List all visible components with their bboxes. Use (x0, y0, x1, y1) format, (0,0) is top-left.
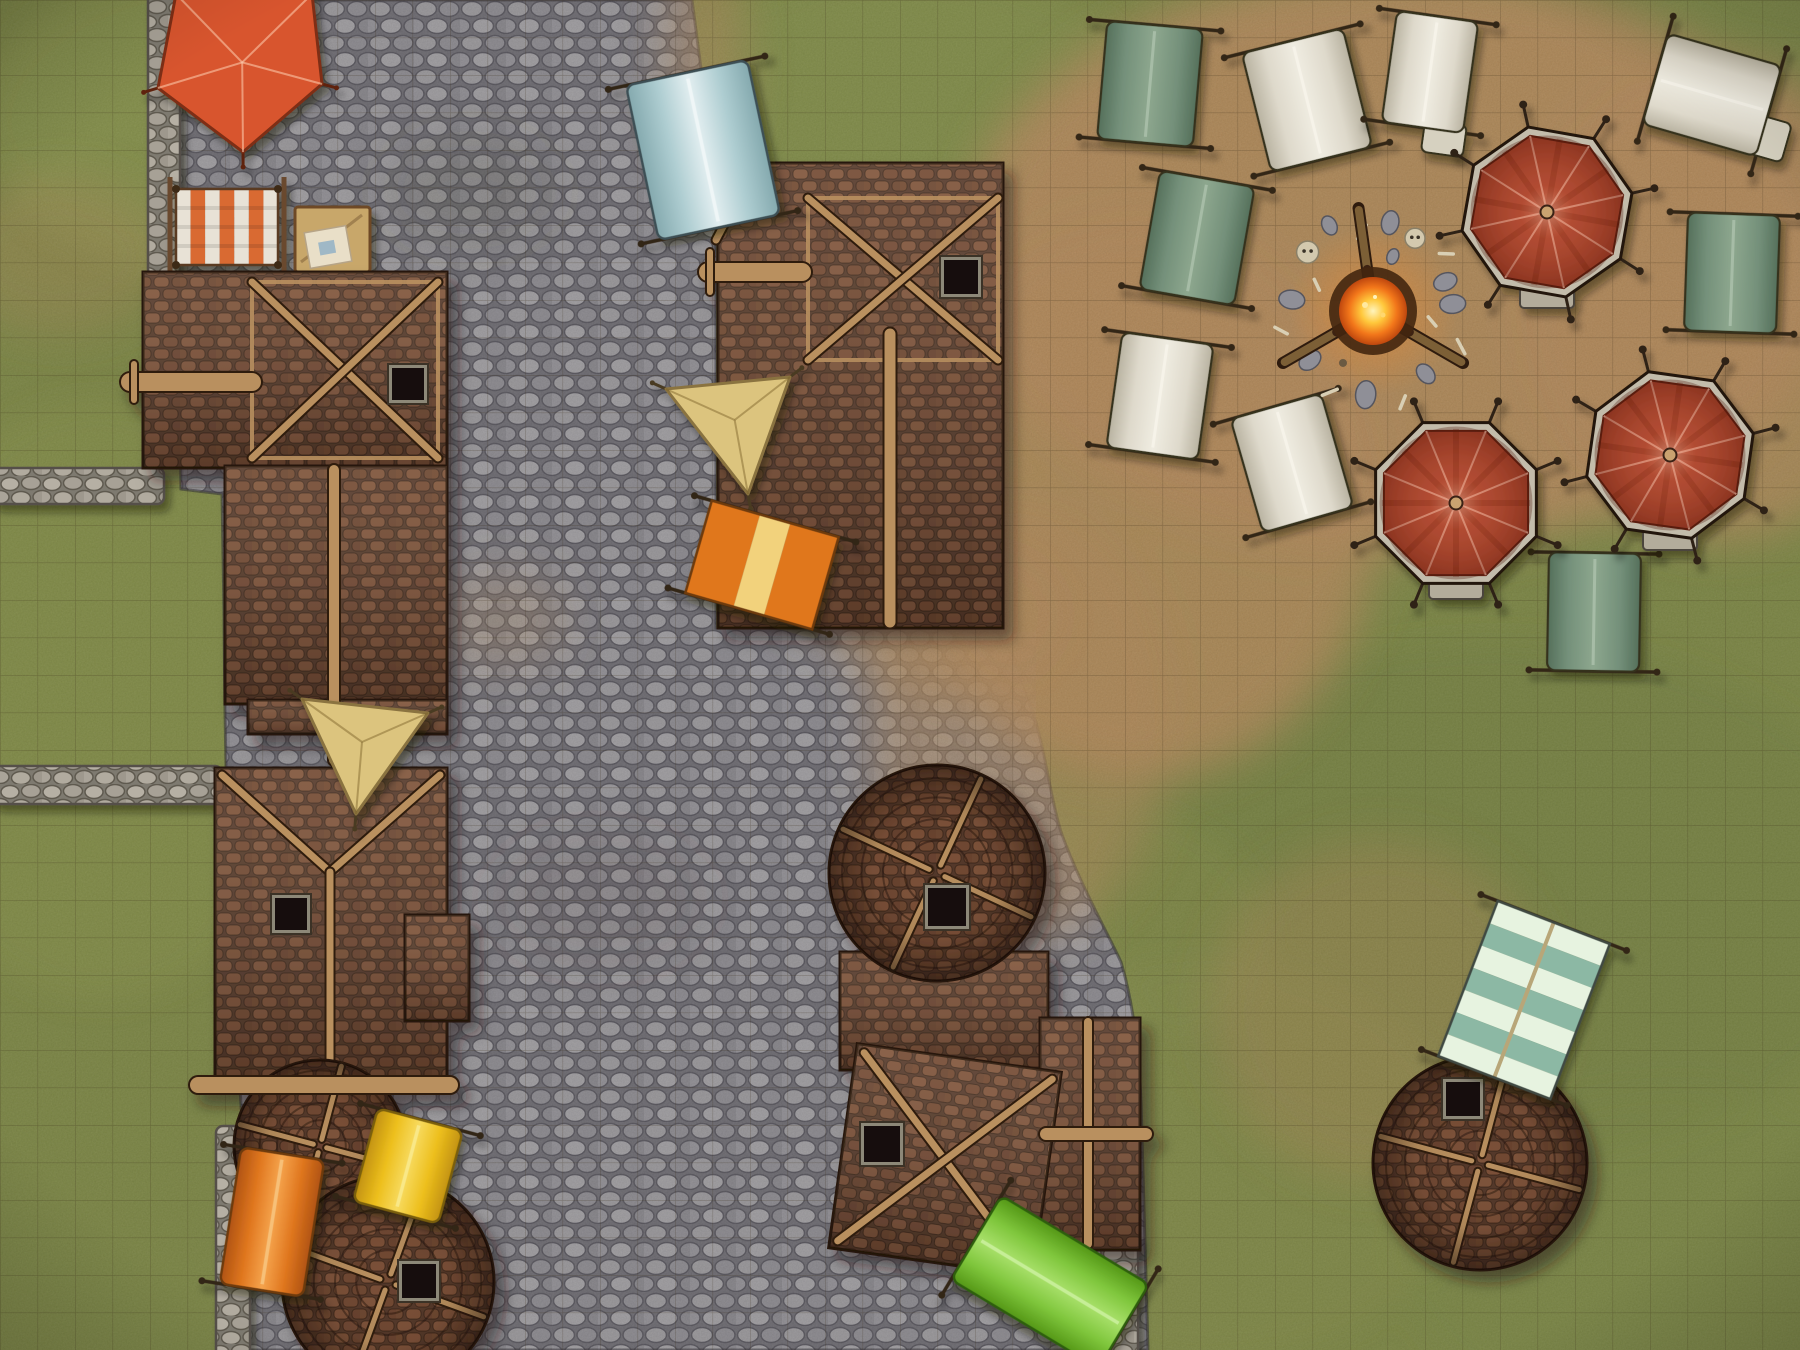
map-canvas (0, 0, 1800, 1350)
vignette (0, 0, 1800, 1350)
battle-map (0, 0, 1800, 1350)
